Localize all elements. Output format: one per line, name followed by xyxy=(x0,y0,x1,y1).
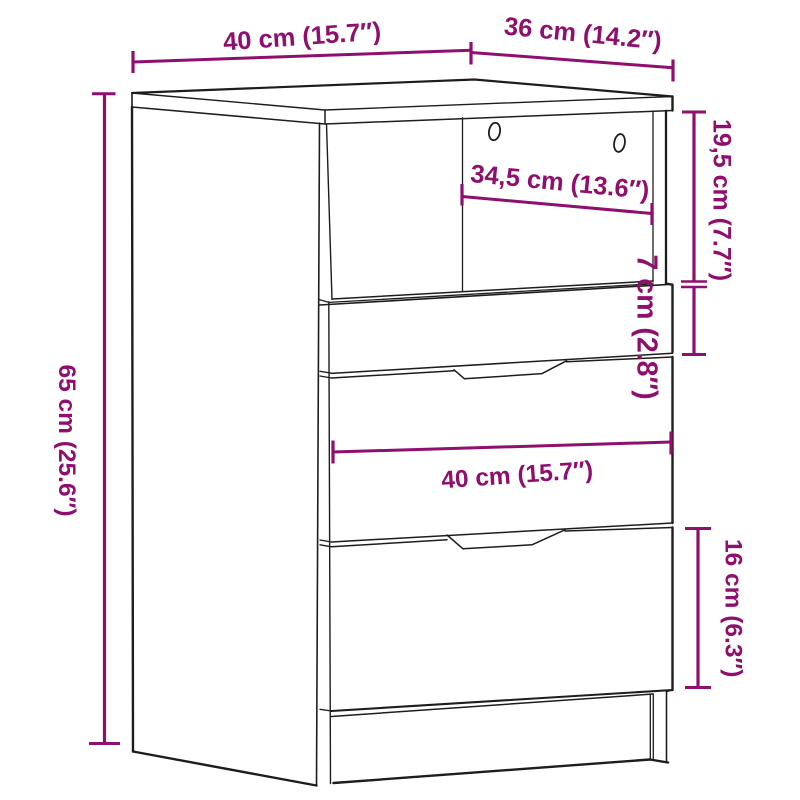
svg-text:16 cm (6.3″): 16 cm (6.3″) xyxy=(720,539,747,677)
svg-text:19,5 cm (7.7″): 19,5 cm (7.7″) xyxy=(708,119,736,281)
svg-text:65 cm (25.6″): 65 cm (25.6″) xyxy=(53,365,80,517)
svg-text:7 cm (2.8″): 7 cm (2.8″) xyxy=(631,255,663,400)
